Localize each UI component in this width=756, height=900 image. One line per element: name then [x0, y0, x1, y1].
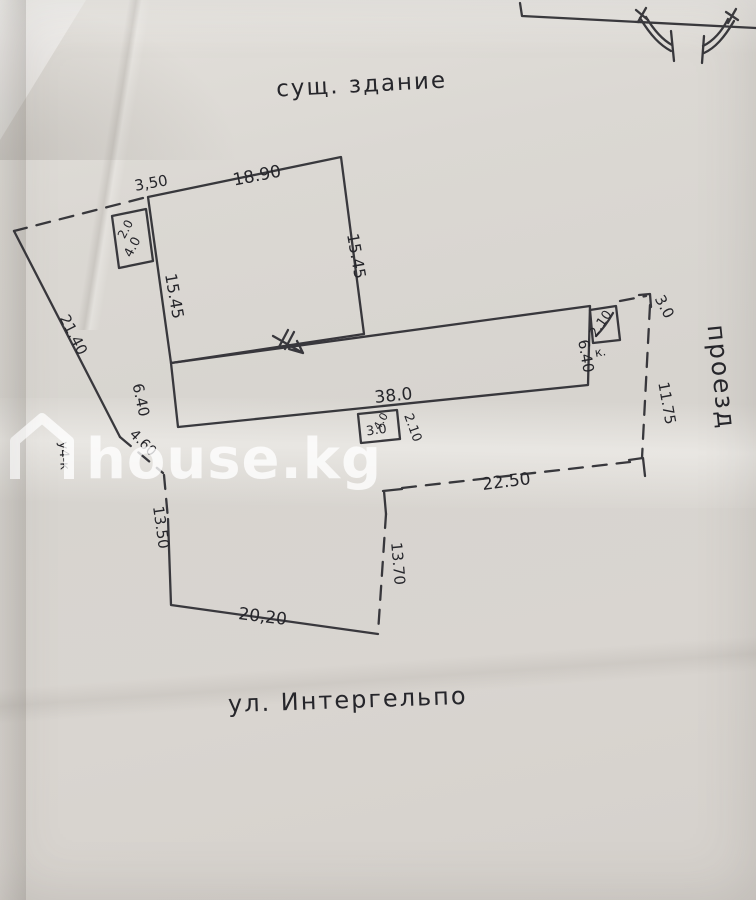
long-building-outline: [171, 306, 590, 427]
label-passage: проезд: [702, 323, 742, 431]
label-existing-building: сущ. здание: [276, 68, 448, 103]
dim-passage-length: 11.75: [654, 380, 679, 425]
gap-right-dashed: [620, 296, 646, 301]
dim-right-box-note: к.: [594, 344, 607, 360]
dim-long-left: 6.40: [129, 382, 154, 418]
lower-dashed-right-corner: [629, 458, 645, 476]
dim-upper-right: 15.45: [343, 232, 370, 280]
site-plan-drawing: сущ. здание ул. Интергельпо проезд у4-к …: [0, 0, 756, 900]
dim-long-length: 38.0: [374, 384, 414, 408]
photographed-site-plan: сущ. здание ул. Интергельпо проезд у4-к …: [0, 0, 756, 900]
lower-top-left-corner: [383, 489, 402, 514]
dim-lower-left: 13.50: [149, 505, 173, 550]
dim-lower-right: 13.70: [387, 541, 409, 585]
lower-right-dashed: [378, 514, 386, 633]
dim-setback-top: 3,50: [133, 171, 169, 195]
buildings-group: [112, 157, 620, 634]
dim-lower-top: 22.50: [481, 469, 532, 495]
watermark: house.kg: [15, 418, 382, 492]
top-fence-group: [520, 3, 756, 63]
dim-bottom-box-side: 2.10: [400, 412, 424, 444]
dim-upper-top: 18.90: [231, 162, 283, 191]
dim-gap-right: 3.0: [651, 292, 678, 322]
dim-boundary-left: 21.40: [56, 312, 92, 358]
top-fence-line: [520, 3, 756, 28]
watermark-text: house.kg: [86, 427, 382, 492]
gate-tick-right: [702, 36, 704, 63]
upper-building-outline: [148, 157, 364, 363]
label-street: ул. Интергельпо: [227, 682, 468, 718]
gate-tick-left: [671, 31, 674, 61]
boundary-right-dashed: [642, 305, 650, 458]
boundaries-group: [14, 198, 651, 633]
dim-lower-bottom: 20,20: [237, 604, 288, 630]
gate-arc-right: [703, 19, 734, 53]
